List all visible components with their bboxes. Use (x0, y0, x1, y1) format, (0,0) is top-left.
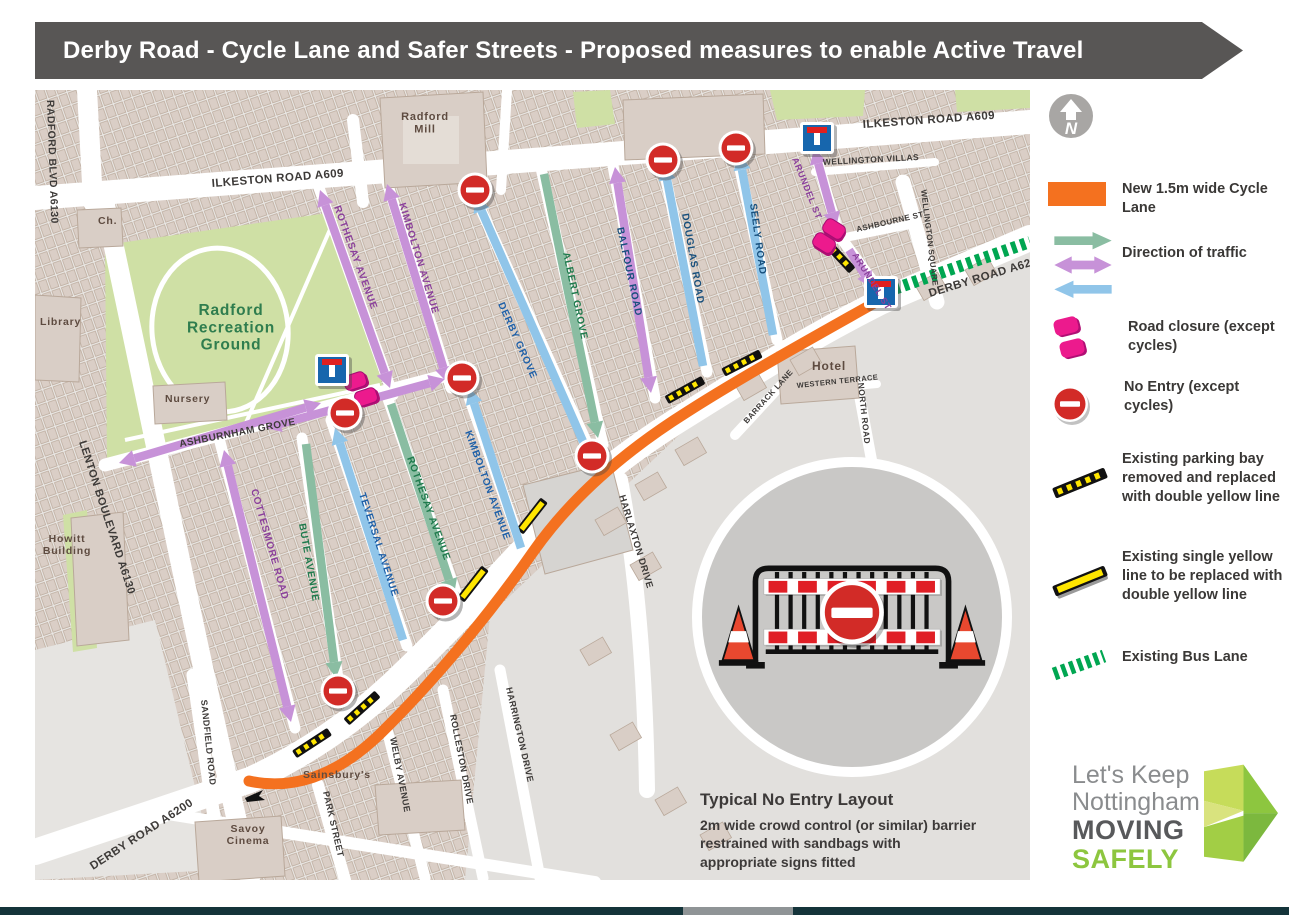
north-compass-icon: N (1048, 93, 1094, 139)
road-closure-icon (1052, 315, 1079, 336)
place-label: Sainsbury's (303, 769, 371, 781)
logo-line2: Nottingham (1072, 789, 1200, 816)
page: Derby Road - Cycle Lane and Safer Street… (0, 0, 1289, 915)
svg-text:N: N (1065, 119, 1078, 138)
building (35, 295, 81, 382)
lets-keep-nottingham-logo: Let's Keep Nottingham MOVING SAFELY (1072, 762, 1278, 874)
inset-caption: Typical No Entry Layout 2m wide crowd co… (700, 790, 980, 871)
legend-label: Existing parking bay removed and replace… (1122, 450, 1284, 507)
no-through-road-sign (315, 354, 352, 389)
road (501, 90, 507, 190)
page-title: Derby Road - Cycle Lane and Safer Street… (63, 37, 1083, 65)
place-label: Nursery (165, 393, 210, 405)
legend-label: Existing single yellow line to be replac… (1122, 548, 1284, 605)
building (375, 780, 465, 835)
place-label: Ch. (98, 215, 117, 227)
legend-item-parking-bay: Existing parking bay removed and replace… (1048, 450, 1284, 507)
legend-item-no-entry: No Entry (except cycles) (1048, 378, 1286, 431)
legend-item-road-closure: Road closure (except cycles) (1048, 318, 1289, 356)
road (87, 90, 93, 202)
inset-body: 2m wide crowd control (or similar) barri… (700, 816, 980, 871)
no-through-road-sign (800, 122, 837, 157)
legend-label: Existing Bus Lane (1122, 642, 1284, 687)
parking-bay-icon (1048, 464, 1112, 502)
legend-label: Direction of traffic (1122, 232, 1284, 303)
legend-item-single-yellow: Existing single yellow line to be replac… (1048, 548, 1284, 605)
logo-line1: Let's Keep (1072, 762, 1200, 789)
title-bar: Derby Road - Cycle Lane and Safer Street… (35, 22, 1243, 79)
place-label: Hotel (812, 359, 846, 373)
cycle-lane-swatch (1048, 182, 1106, 206)
no-entry-icon (1050, 384, 1092, 426)
building (77, 208, 123, 248)
road-closure-icon (1058, 337, 1085, 358)
legend-label: No Entry (except cycles) (1124, 378, 1286, 431)
no-entry-layout-inset (692, 457, 1012, 777)
direction-arrows-icon (1048, 232, 1118, 298)
logo-line3: MOVING (1072, 816, 1200, 845)
legend-label: Road closure (except cycles) (1128, 318, 1289, 356)
inset-title: Typical No Entry Layout (700, 790, 980, 810)
legend-label: New 1.5m wide Cycle Lane (1122, 180, 1284, 218)
logo-chevron-icon (1204, 764, 1278, 864)
place-label: HowittBuilding (43, 533, 91, 557)
legend-item-cycle-lane: New 1.5m wide Cycle Lane (1048, 180, 1284, 218)
logo-line4: SAFELY (1072, 845, 1200, 874)
legend-item-bus-lane: Existing Bus Lane (1048, 642, 1284, 687)
place-label: Library (40, 316, 81, 328)
barrier-illustration (702, 467, 1002, 767)
bottom-edge-bar (0, 907, 1289, 915)
place-label: SavoyCinema (227, 823, 270, 847)
bus-lane-icon (1048, 648, 1112, 682)
legend-item-direction: Direction of traffic (1048, 232, 1284, 303)
single-yellow-icon (1048, 562, 1112, 600)
